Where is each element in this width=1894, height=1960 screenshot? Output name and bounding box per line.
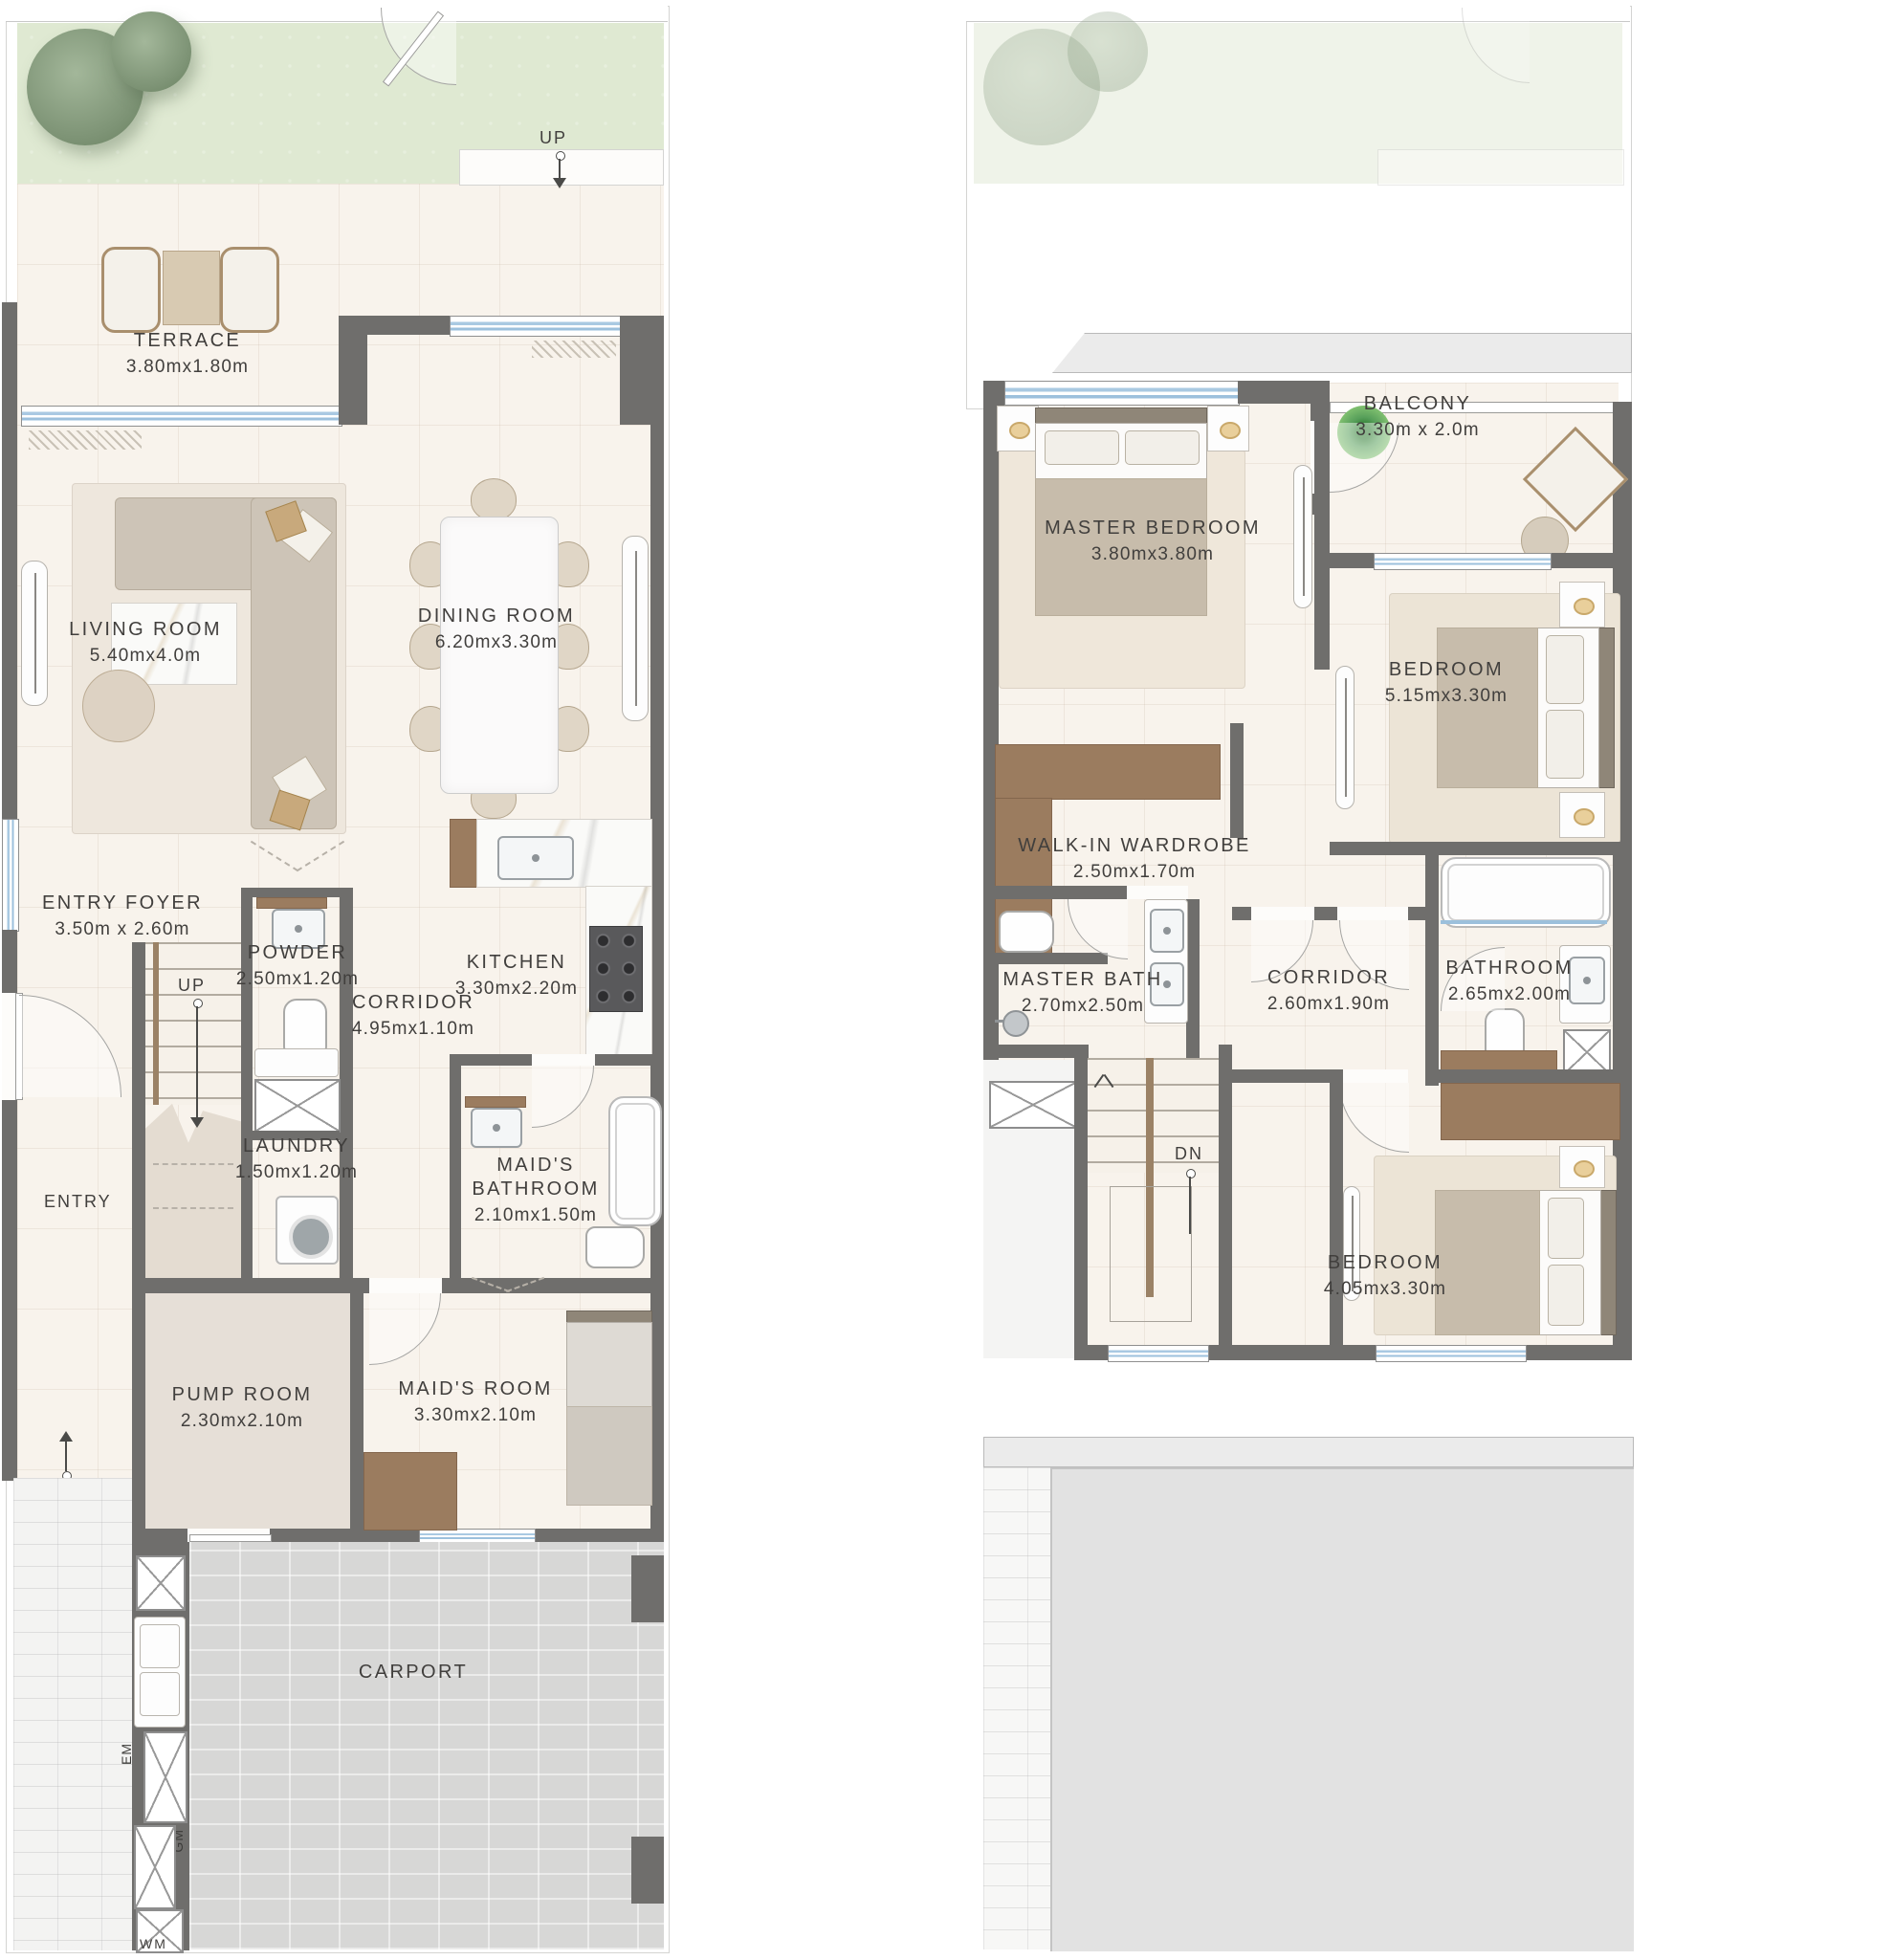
pillow bbox=[1548, 1265, 1584, 1326]
maids-wardrobe bbox=[363, 1452, 457, 1531]
wall bbox=[132, 1278, 145, 1542]
room-label-entry-foyer: ENTRY FOYER 3.50m x 2.60m bbox=[42, 892, 203, 941]
carport-column bbox=[631, 1555, 664, 1622]
dn-label: DN bbox=[1175, 1144, 1203, 1164]
terrace-armchair bbox=[220, 247, 279, 333]
kitchen-sink bbox=[497, 836, 574, 880]
maids-bath-sink bbox=[471, 1108, 522, 1148]
entry-label: ENTRY bbox=[44, 1192, 112, 1212]
shower-arm bbox=[995, 1020, 1004, 1023]
linen-counter bbox=[254, 1048, 339, 1077]
carport-label: CARPORT bbox=[359, 1661, 468, 1685]
room-label-bedroom2: BEDROOM 4.05mx3.30m bbox=[1324, 1251, 1446, 1301]
wall bbox=[650, 316, 664, 1542]
stove bbox=[589, 926, 643, 1012]
dining-chair bbox=[471, 478, 517, 520]
meter-box bbox=[134, 1825, 176, 1909]
wall bbox=[2, 1100, 17, 1481]
wall bbox=[2, 302, 17, 427]
meter-cabinet-door bbox=[140, 1624, 180, 1668]
lower-roof-band bbox=[983, 1437, 1634, 1467]
plan2-pergola-band bbox=[966, 6, 1630, 22]
room-label-master-bath: MASTER BATH 2.70mx2.50m bbox=[968, 968, 1198, 1018]
maids-bed-blanket bbox=[566, 1406, 652, 1506]
carport-up-line bbox=[65, 1441, 67, 1471]
ottoman bbox=[82, 670, 155, 742]
maids-bath-shelf bbox=[465, 1096, 526, 1108]
stair-window bbox=[1108, 1345, 1209, 1362]
faded-platform bbox=[1377, 149, 1624, 186]
maids-bath-tub bbox=[608, 1096, 662, 1226]
carport-roof bbox=[1050, 1467, 1634, 1951]
wm-meter-label: WM bbox=[140, 1936, 167, 1951]
bathroom-closet bbox=[1563, 1029, 1611, 1075]
meter-box bbox=[136, 1555, 186, 1611]
nightstand bbox=[1559, 582, 1605, 628]
dn-line bbox=[1189, 1177, 1191, 1234]
room-label-corridor: CORRIDOR 4.95mx1.10m bbox=[352, 991, 474, 1041]
carport-column bbox=[631, 1837, 664, 1904]
bathroom-counter bbox=[1441, 1050, 1557, 1071]
room-label-dining-room: DINING ROOM 6.20mx3.30m bbox=[418, 605, 575, 654]
room-label-master-bedroom: MASTER BEDROOM 3.80mx3.80m bbox=[1019, 517, 1287, 566]
pillow bbox=[1546, 710, 1584, 779]
wall bbox=[983, 886, 1127, 899]
side-walkway-roof bbox=[983, 1467, 1050, 1949]
wall bbox=[2, 427, 17, 819]
room-label-powder: POWDER 2.50mx1.20m bbox=[236, 941, 359, 991]
pump-door-leaf bbox=[189, 1534, 272, 1542]
garden-up-label: UP bbox=[540, 128, 567, 148]
stair-rail bbox=[153, 942, 159, 1105]
wall bbox=[1330, 1069, 1343, 1358]
room-label-pump-room: PUMP ROOM 2.30mx2.10m bbox=[172, 1383, 313, 1433]
wall bbox=[1330, 842, 1441, 855]
wall bbox=[1238, 381, 1314, 404]
tree-icon bbox=[111, 11, 191, 92]
maids-bath-toilet bbox=[585, 1226, 645, 1268]
garden-up-arrow-head bbox=[553, 178, 566, 188]
dining-window bbox=[450, 316, 622, 337]
corridor-door-gap bbox=[1337, 907, 1408, 920]
stair-dashed-line bbox=[153, 1163, 233, 1165]
nightstand bbox=[1207, 406, 1249, 451]
em-meter-label: EM bbox=[119, 1743, 134, 1765]
room-label-walkin-wardrobe: WALK-IN WARDROBE 2.50mx1.70m bbox=[991, 834, 1278, 884]
wall bbox=[1232, 1069, 1343, 1083]
wall bbox=[983, 953, 1108, 964]
staircase-ground bbox=[145, 942, 241, 1105]
dining-table bbox=[440, 517, 559, 794]
nightstand bbox=[1559, 1146, 1605, 1188]
wall bbox=[1074, 1045, 1088, 1358]
vanity-sink bbox=[1150, 909, 1184, 953]
wall bbox=[1425, 842, 1632, 855]
pillow bbox=[1125, 430, 1200, 465]
meter-box bbox=[143, 1731, 187, 1823]
bathtub bbox=[1441, 857, 1611, 928]
room-label-corridor2: CORRIDOR 2.60mx1.90m bbox=[1267, 966, 1390, 1016]
linen-closet bbox=[254, 1079, 341, 1133]
room-label-maids-bathroom: MAID'S BATHROOM 2.10mx1.50m bbox=[459, 1154, 612, 1227]
wardrobe-counter bbox=[995, 744, 1221, 800]
maids-bath-door-gap bbox=[532, 1054, 595, 1066]
room-label-terrace: TERRACE 3.80mx1.80m bbox=[126, 329, 249, 379]
bedroom2-wardrobe bbox=[1441, 1083, 1620, 1140]
plan1-pergola-band bbox=[6, 6, 668, 22]
bedroom2-window bbox=[1376, 1345, 1527, 1362]
tree-icon bbox=[1068, 11, 1148, 92]
stair-dashed-line bbox=[153, 1207, 233, 1209]
wall bbox=[1425, 1069, 1632, 1083]
nightstand bbox=[1559, 792, 1605, 838]
wall bbox=[1314, 411, 1330, 670]
dining-console bbox=[622, 536, 649, 721]
master-bedroom-window bbox=[1004, 381, 1240, 406]
carport-paving bbox=[189, 1542, 664, 1949]
wall bbox=[253, 888, 340, 897]
powder-shelf bbox=[256, 897, 327, 909]
wall-console bbox=[1335, 666, 1354, 809]
bedroom1-window bbox=[1374, 553, 1552, 570]
room-label-living-room: LIVING ROOM 5.40mx4.0m bbox=[69, 618, 222, 668]
wall bbox=[132, 942, 145, 1287]
corridor-door-gap bbox=[1251, 907, 1314, 920]
kitchen-cabinet bbox=[450, 819, 478, 888]
pillow bbox=[1045, 430, 1119, 465]
bedroom2-door-gap bbox=[1337, 1069, 1408, 1083]
dn-circle bbox=[1186, 1169, 1196, 1178]
wall bbox=[339, 316, 367, 425]
maids-room-door-gap bbox=[369, 1278, 442, 1293]
bedroom1-blanket bbox=[1437, 628, 1538, 788]
tv-console bbox=[21, 561, 48, 706]
terrace-armchair bbox=[101, 247, 161, 333]
wall bbox=[983, 1045, 1089, 1058]
entry-walkway bbox=[13, 1478, 132, 1950]
wall bbox=[350, 1293, 363, 1542]
window-hatch bbox=[29, 430, 142, 450]
room-label-maids-room: MAID'S ROOM 3.30mx2.10m bbox=[398, 1377, 552, 1427]
master-bath-toilet bbox=[999, 911, 1054, 953]
foyer-window bbox=[2, 819, 19, 932]
room-label-balcony: BALCONY 3.30m x 2.0m bbox=[1355, 392, 1480, 442]
meter-cabinet-door bbox=[140, 1672, 180, 1716]
wall bbox=[1230, 723, 1244, 838]
bathtub-waterline bbox=[1441, 920, 1607, 924]
pillow bbox=[1548, 1198, 1584, 1259]
room-label-laundry: LAUNDRY 1.50mx1.20m bbox=[235, 1134, 358, 1184]
wall bbox=[1219, 1045, 1232, 1358]
room-label-bathroom: BATHROOM 2.65mx2.00m bbox=[1404, 957, 1615, 1006]
stair-inner-outline bbox=[1110, 1186, 1192, 1322]
stairs-up-line bbox=[196, 1006, 198, 1119]
master-bath-door-gap bbox=[1127, 886, 1188, 899]
nightstand bbox=[997, 406, 1039, 451]
terrace-window bbox=[21, 406, 342, 427]
landing-closet bbox=[989, 1081, 1077, 1129]
wall-console bbox=[1293, 465, 1312, 608]
garden-up-arrow-line bbox=[559, 159, 561, 180]
powder-toilet bbox=[283, 999, 327, 1056]
stairs-up-circle bbox=[193, 999, 203, 1008]
bedroom2-blanket bbox=[1435, 1190, 1540, 1335]
roof-canopy bbox=[1052, 333, 1632, 373]
washing-machine bbox=[275, 1196, 339, 1265]
bedroom1-headboard bbox=[1597, 628, 1615, 788]
terrace-table bbox=[163, 251, 220, 325]
room-label-bedroom1: BEDROOM 5.15mx3.30m bbox=[1385, 658, 1508, 708]
pillow bbox=[1546, 635, 1584, 704]
stairs-up-label: UP bbox=[178, 976, 206, 996]
window-hatch bbox=[532, 341, 616, 358]
stairs-up-head bbox=[190, 1117, 204, 1128]
wall bbox=[2, 930, 17, 993]
garden-up-arrow-circle bbox=[556, 151, 565, 161]
floorplan-canvas: UP TERRACE 3.80mx1.80m LIVING ROOM 5.40m… bbox=[0, 0, 1894, 1960]
bedroom2-headboard bbox=[1599, 1190, 1617, 1335]
wall bbox=[367, 316, 450, 335]
